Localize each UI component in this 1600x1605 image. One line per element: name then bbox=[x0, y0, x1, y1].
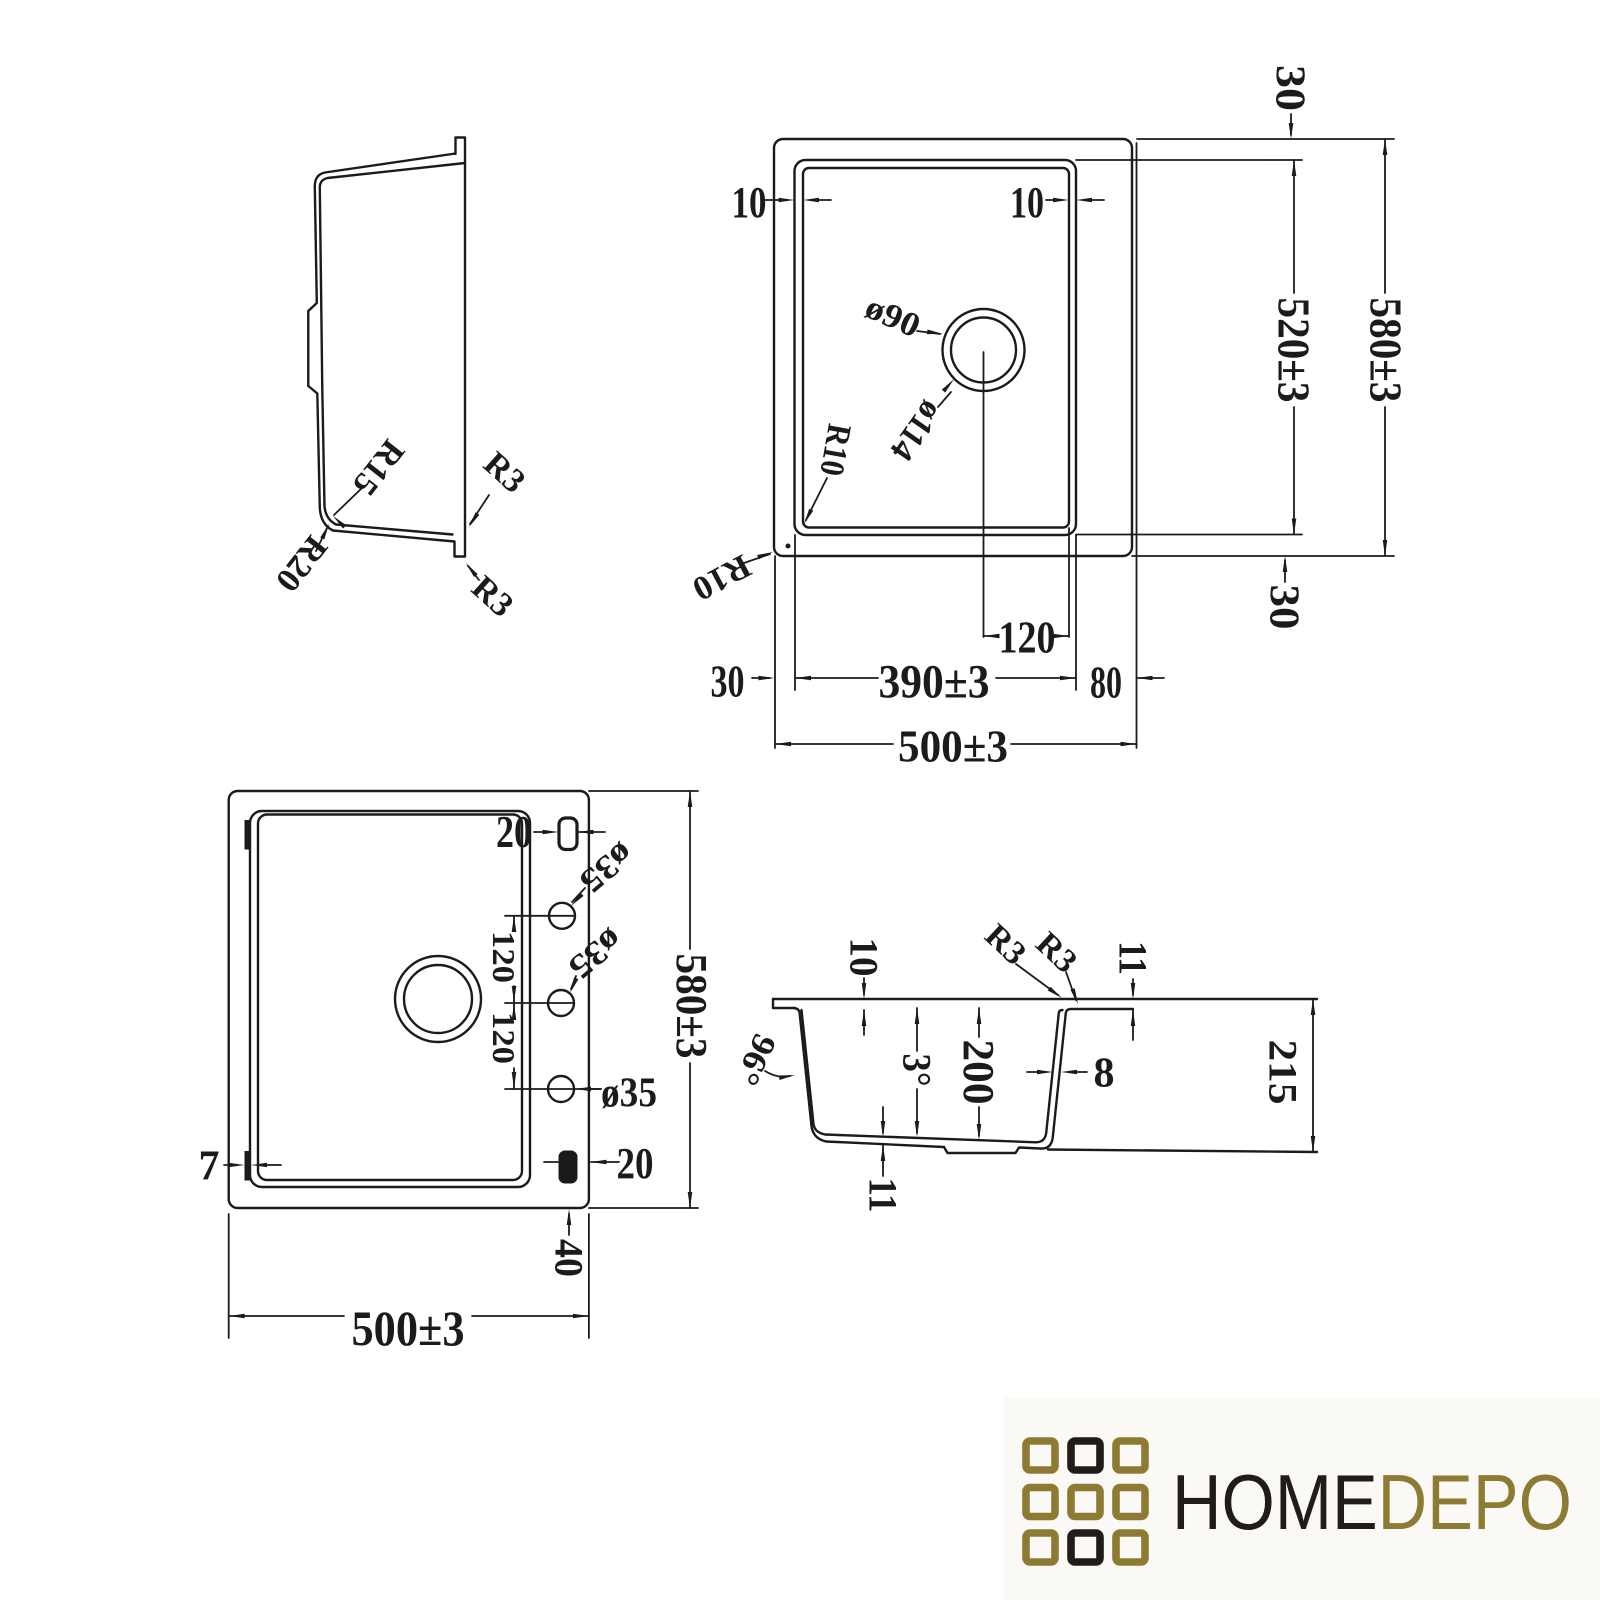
svg-text:215: 215 bbox=[1260, 1040, 1305, 1105]
svg-text:520±3: 520±3 bbox=[1268, 298, 1319, 403]
svg-text:R3: R3 bbox=[476, 445, 532, 501]
svg-text:7: 7 bbox=[199, 1143, 220, 1189]
svg-text:96°: 96° bbox=[727, 1028, 783, 1091]
svg-text:500±3: 500±3 bbox=[898, 721, 1008, 772]
svg-text:R3: R3 bbox=[464, 569, 520, 625]
svg-text:120: 120 bbox=[999, 612, 1056, 662]
svg-text:R3: R3 bbox=[978, 917, 1033, 972]
svg-text:120: 120 bbox=[486, 1012, 522, 1064]
svg-text:580±3: 580±3 bbox=[1360, 298, 1411, 403]
svg-text:11: 11 bbox=[860, 1178, 905, 1213]
svg-text:10: 10 bbox=[841, 938, 886, 977]
svg-text:30: 30 bbox=[1261, 585, 1307, 630]
svg-text:120: 120 bbox=[486, 931, 522, 983]
svg-text:R10: R10 bbox=[812, 421, 857, 479]
svg-text:R15: R15 bbox=[345, 432, 411, 502]
svg-text:R3: R3 bbox=[1029, 925, 1084, 980]
svg-text:20: 20 bbox=[496, 806, 532, 857]
svg-text:30: 30 bbox=[711, 656, 745, 707]
svg-text:20: 20 bbox=[617, 1139, 654, 1188]
svg-text:580±3: 580±3 bbox=[667, 954, 716, 1059]
svg-text:10: 10 bbox=[1010, 178, 1044, 227]
svg-text:ø35: ø35 bbox=[561, 920, 629, 986]
svg-text:R10: R10 bbox=[686, 547, 756, 608]
svg-text:80: 80 bbox=[1090, 657, 1122, 708]
svg-text:11: 11 bbox=[1110, 941, 1155, 975]
svg-text:ø90: ø90 bbox=[859, 289, 925, 346]
svg-text:30: 30 bbox=[1267, 65, 1313, 111]
svg-text:500±3: 500±3 bbox=[352, 1300, 465, 1356]
svg-text:3°: 3° bbox=[894, 1054, 939, 1087]
svg-text:ø35: ø35 bbox=[601, 1070, 657, 1116]
svg-text:200: 200 bbox=[954, 1040, 1003, 1105]
svg-text:10: 10 bbox=[732, 178, 767, 227]
svg-text:390±3: 390±3 bbox=[879, 655, 990, 708]
svg-text:8: 8 bbox=[1094, 1050, 1115, 1096]
svg-text:40: 40 bbox=[546, 1239, 591, 1277]
svg-text:HOMEDEPO: HOMEDEPO bbox=[1172, 1458, 1572, 1546]
